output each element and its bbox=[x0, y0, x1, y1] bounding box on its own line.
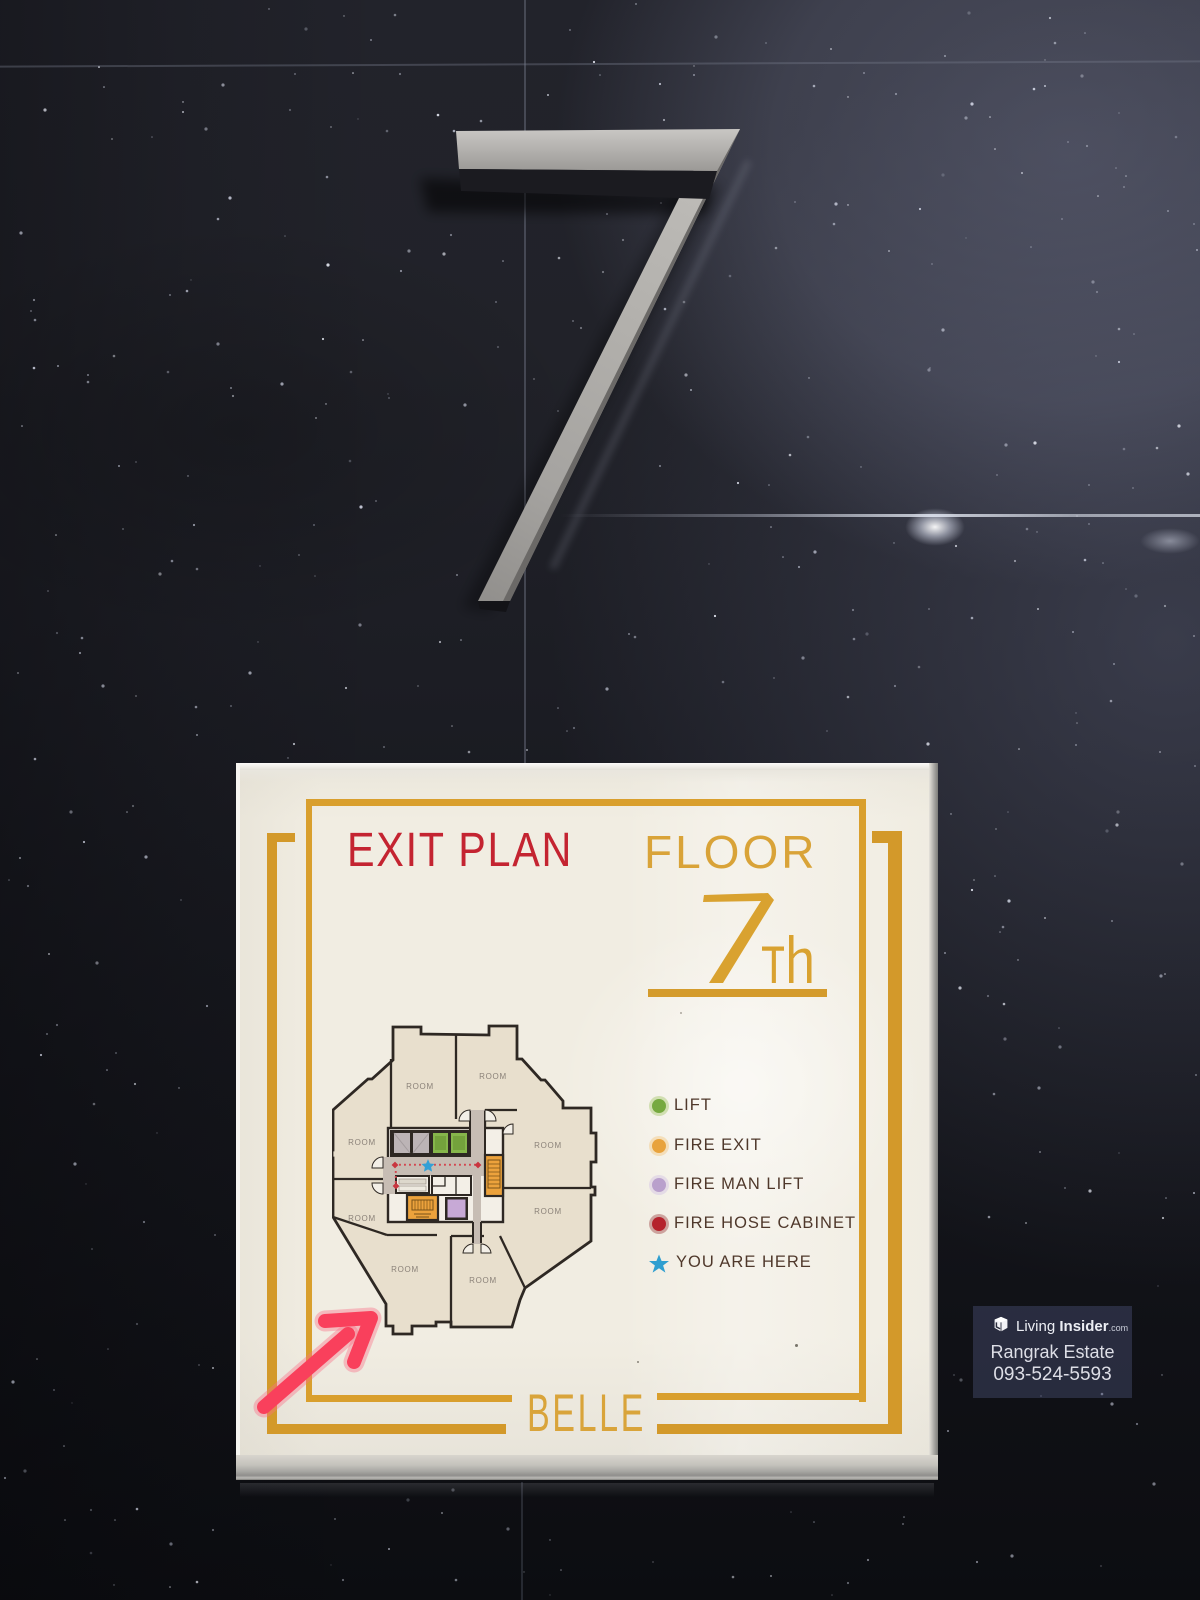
svg-text:ROOM: ROOM bbox=[391, 1265, 419, 1274]
svg-text:ROOM: ROOM bbox=[348, 1214, 376, 1223]
svg-text:ROOM: ROOM bbox=[534, 1141, 562, 1150]
svg-text:ROOM: ROOM bbox=[469, 1276, 497, 1285]
svg-text:ROOM: ROOM bbox=[534, 1207, 562, 1216]
svg-text:ROOM: ROOM bbox=[348, 1138, 376, 1147]
svg-text:ROOM: ROOM bbox=[406, 1082, 434, 1091]
svg-text:ROOM: ROOM bbox=[479, 1072, 507, 1081]
